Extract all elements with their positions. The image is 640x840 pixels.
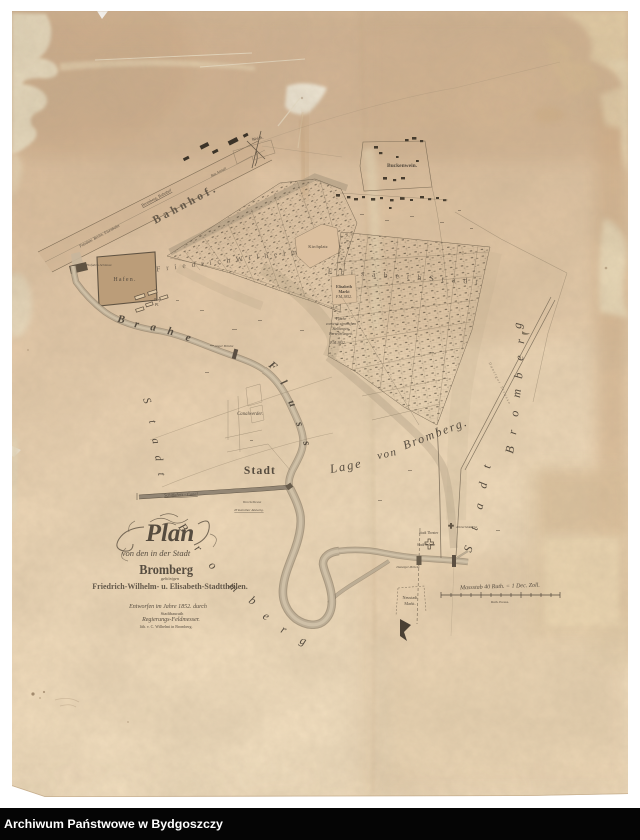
svg-text:Anger Brücke: Anger Brücke bbox=[214, 344, 234, 348]
svg-text:Regierungs-Feldmesser.: Regierungs-Feldmesser. bbox=[141, 617, 200, 623]
svg-text:convenit sämtlichen: convenit sämtlichen bbox=[326, 322, 356, 326]
svg-text:Danziger-Brücke: Danziger-Brücke bbox=[395, 565, 420, 569]
svg-text:Fläche: Fläche bbox=[335, 317, 347, 321]
svg-text:Bromberg: Bromberg bbox=[139, 561, 193, 577]
svg-text:F.M.1852.: F.M.1852. bbox=[335, 294, 352, 299]
svg-text:Kirchplatz: Kirchplatz bbox=[308, 244, 327, 249]
svg-text:Neustadt: Neustadt bbox=[403, 595, 419, 600]
svg-text:Parzellirungen.: Parzellirungen. bbox=[328, 332, 353, 336]
svg-text:Stadt: Stadt bbox=[244, 465, 276, 477]
svg-text:m: m bbox=[509, 388, 524, 398]
svg-text:Stadtbaurath: Stadtbaurath bbox=[161, 611, 184, 616]
svg-text:Plan: Plan bbox=[145, 520, 195, 547]
svg-text:Archiwum Państwowe w Bydgoszcz: Archiwum Państwowe w Bydgoszczy bbox=[4, 817, 223, 831]
svg-text:von den in der Stadt: von den in der Stadt bbox=[122, 548, 191, 558]
svg-text:gehörigen: gehörigen bbox=[161, 576, 180, 581]
svg-text:Buckenwein.: Buckenwein. bbox=[387, 163, 418, 169]
svg-text:Hafen.: Hafen. bbox=[113, 276, 136, 283]
svg-text:Markt.: Markt. bbox=[404, 601, 415, 606]
svg-text:Friedrich-Wilhelm- u. Elisabet: Friedrich-Wilhelm- u. Elisabeth-Stadtthe… bbox=[92, 582, 247, 591]
svg-text:F.M.1852.: F.M.1852. bbox=[329, 341, 345, 345]
svg-text:lith. v. C. Wilhelmi in Brombe: lith. v. C. Wilhelmi in Bromberg. bbox=[140, 624, 193, 629]
svg-text:Canalwerder.: Canalwerder. bbox=[237, 412, 263, 417]
svg-text:Vom Schleuse: Vom Schleuse bbox=[243, 500, 262, 504]
svg-text:Entworfen im Jahre 1852. durch: Entworfen im Jahre 1852. durch bbox=[128, 603, 207, 610]
svg-text:Einfahrts-Schleuse: Einfahrts-Schleuse bbox=[85, 263, 112, 267]
svg-text:Stadt Schule: Stadt Schule bbox=[417, 543, 435, 547]
svg-text:Ruth. Preuss.: Ruth. Preuss. bbox=[491, 600, 509, 604]
svg-text:Prinzenthor Abzweig.: Prinzenthor Abzweig. bbox=[233, 508, 263, 512]
svg-text:Pl.: Pl. bbox=[154, 302, 160, 307]
svg-text:Stadt Theater: Stadt Theater bbox=[419, 531, 439, 535]
svg-text:g: g bbox=[510, 322, 524, 329]
